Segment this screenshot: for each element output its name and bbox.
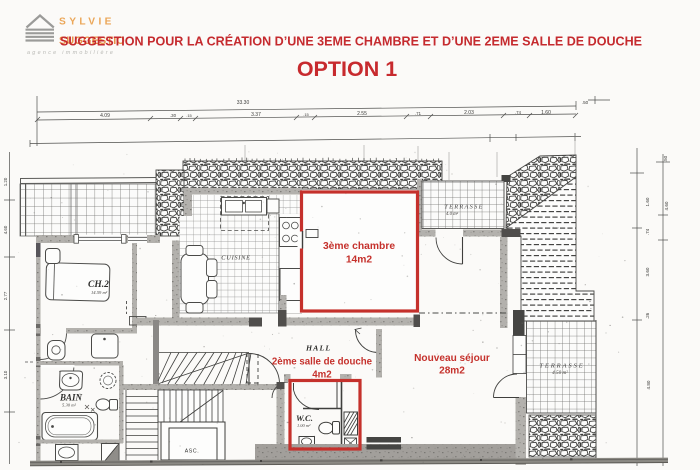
svg-text:33.30: 33.30 bbox=[237, 100, 250, 106]
svg-text:.74: .74 bbox=[515, 110, 521, 115]
svg-text:SUGGESTION POUR LA CRÉATION D’: SUGGESTION POUR LA CRÉATION D’UNE 3EME C… bbox=[60, 34, 642, 49]
svg-text:1.00 m²: 1.00 m² bbox=[297, 423, 311, 428]
svg-text:OPTION 1: OPTION 1 bbox=[297, 57, 397, 81]
svg-text:TERRASSE: TERRASSE bbox=[444, 204, 483, 211]
svg-text:2.77: 2.77 bbox=[3, 291, 8, 300]
svg-text:4.80: 4.80 bbox=[646, 380, 651, 389]
svg-text:.26: .26 bbox=[645, 312, 650, 319]
svg-text:agence immobilière: agence immobilière bbox=[27, 50, 115, 56]
svg-text:2.03: 2.03 bbox=[464, 110, 474, 116]
svg-text:Nouveau séjour: Nouveau séjour bbox=[414, 353, 490, 364]
svg-text:.30: .30 bbox=[170, 113, 177, 118]
svg-text:3.60: 3.60 bbox=[645, 267, 650, 276]
svg-text:.71: .71 bbox=[415, 111, 421, 116]
svg-text:1.60: 1.60 bbox=[541, 110, 551, 116]
svg-text:3.10: 3.10 bbox=[3, 370, 8, 379]
svg-text:4.60: 4.60 bbox=[664, 201, 669, 210]
svg-text:W.C.: W.C. bbox=[296, 413, 313, 423]
svg-text:.15: .15 bbox=[303, 112, 309, 117]
svg-text:CUISINE: CUISINE bbox=[221, 255, 250, 262]
svg-text:TERRASSE: TERRASSE bbox=[539, 363, 584, 370]
svg-text:.15: .15 bbox=[186, 113, 192, 118]
svg-text:.74: .74 bbox=[645, 228, 650, 235]
svg-text:.50: .50 bbox=[582, 100, 589, 105]
svg-text:28m2: 28m2 bbox=[439, 366, 465, 377]
svg-text:14.59 m²: 14.59 m² bbox=[91, 290, 108, 295]
svg-text:SYLVIE: SYLVIE bbox=[59, 17, 115, 28]
svg-text:4.09: 4.09 bbox=[100, 113, 110, 119]
svg-text:ASC.: ASC. bbox=[185, 449, 200, 455]
svg-text:5.30 m²: 5.30 m² bbox=[62, 403, 77, 408]
svg-text:3ème chambre: 3ème chambre bbox=[323, 241, 395, 252]
svg-text:.50: .50 bbox=[663, 155, 668, 162]
svg-text:4.60: 4.60 bbox=[3, 225, 8, 234]
svg-text:2ème salle de douche: 2ème salle de douche bbox=[272, 357, 373, 368]
svg-text:1.20: 1.20 bbox=[3, 177, 8, 186]
svg-text:CH.2: CH.2 bbox=[88, 280, 109, 290]
svg-text:BAIN: BAIN bbox=[59, 393, 83, 403]
svg-text:4m2: 4m2 bbox=[312, 370, 331, 381]
svg-text:4.50 m²: 4.50 m² bbox=[552, 369, 568, 376]
svg-text:14m2: 14m2 bbox=[346, 255, 373, 266]
svg-text:3.37: 3.37 bbox=[251, 112, 261, 118]
svg-text:HALL: HALL bbox=[305, 344, 331, 353]
svg-text:4.0 m³: 4.0 m³ bbox=[446, 211, 459, 217]
svg-text:1.60: 1.60 bbox=[645, 197, 650, 206]
svg-text:2.55: 2.55 bbox=[357, 111, 367, 117]
